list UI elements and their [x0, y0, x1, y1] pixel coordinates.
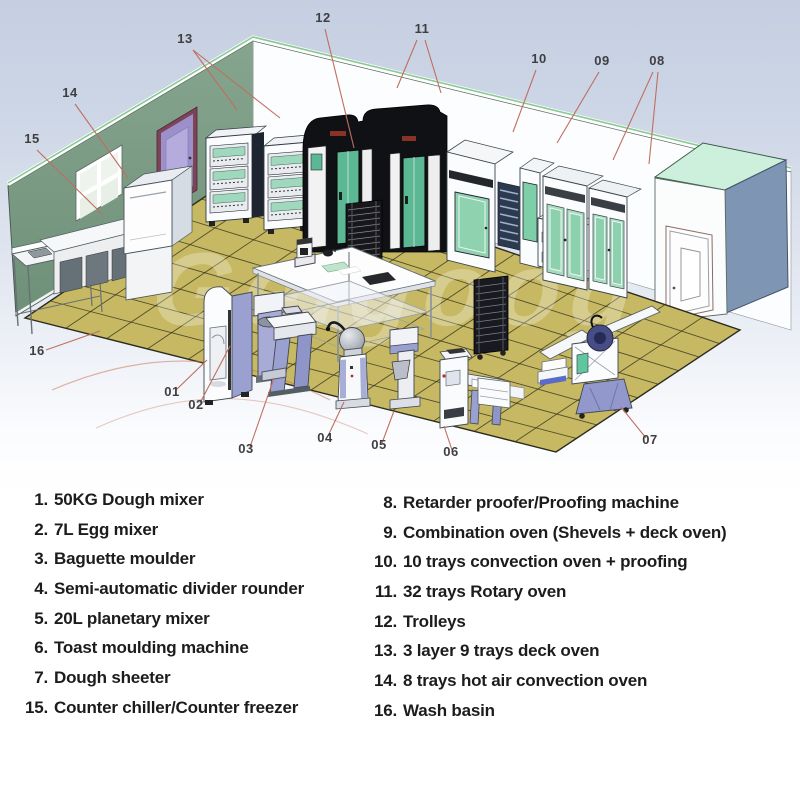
- legend-item-text: Semi-automatic divider rounder: [54, 574, 304, 604]
- walk-in-chamber: [655, 143, 788, 322]
- coffee-machine: [295, 238, 315, 267]
- legend-item: 3.Baguette moulder: [20, 544, 360, 574]
- watermark-swoosh: [96, 399, 368, 434]
- callout-label-14: 14: [62, 85, 78, 100]
- legend-column-right: 8.Retarder proofer/Proofing machine9.Com…: [370, 488, 790, 726]
- legend-item-number: 5.: [20, 604, 48, 634]
- legend-item-text: Trolleys: [403, 607, 466, 637]
- bakery-layout-screenshot: Gelgoog: [0, 0, 800, 800]
- leader-line: [176, 360, 207, 390]
- legend-item-number: 4.: [20, 574, 48, 604]
- callout-label-12: 12: [315, 10, 330, 25]
- callout-label-08: 08: [649, 53, 664, 68]
- callout-label-01: 01: [164, 384, 179, 399]
- legend-item-number: 6.: [20, 633, 48, 663]
- legend-item: 12.Trolleys: [370, 607, 790, 637]
- legend-column-left: 1.50KG Dough mixer2.7L Egg mixer3.Baguet…: [20, 485, 360, 723]
- legend-item-text: Retarder proofer/Proofing machine: [403, 488, 679, 518]
- legend-item-text: Toast moulding machine: [54, 633, 249, 663]
- deck-oven-module: [210, 143, 248, 213]
- legend-item-number: 8.: [370, 488, 397, 518]
- callout-label-10: 10: [531, 51, 546, 66]
- callout-label-06: 06: [443, 444, 458, 459]
- trolley: [474, 276, 508, 360]
- legend-item-number: 11.: [370, 577, 397, 607]
- legend-item: 4.Semi-automatic divider rounder: [20, 574, 360, 604]
- legend-item-text: 10 trays convection oven + proofing: [403, 547, 687, 577]
- legend-item: 14.8 trays hot air convection oven: [370, 666, 790, 696]
- legend-item-number: 16.: [370, 696, 397, 726]
- legend-item: 2.7L Egg mixer: [20, 515, 360, 545]
- legend-item-text: 3 layer 9 trays deck oven: [403, 636, 599, 666]
- legend-item: 8.Retarder proofer/Proofing machine: [370, 488, 790, 518]
- callout-label-04: 04: [317, 430, 333, 445]
- slat-rack: [498, 182, 520, 250]
- dough-mixer-01: [204, 287, 252, 405]
- legend-item: 1.50KG Dough mixer: [20, 485, 360, 515]
- utility-cart: [478, 378, 510, 408]
- legend-item: 7.Dough sheeter: [20, 663, 360, 693]
- callout-label-07: 07: [642, 432, 657, 447]
- legend-item-number: 3.: [20, 544, 48, 574]
- legend-item-text: Baguette moulder: [54, 544, 195, 574]
- leader-line: [46, 331, 100, 350]
- legend-item-number: 15.: [20, 693, 48, 723]
- callout-label-03: 03: [238, 441, 253, 456]
- legend-item-number: 2.: [20, 515, 48, 545]
- legend-item-text: Combination oven (Shevels + deck oven): [403, 518, 727, 548]
- callout-label-02: 02: [188, 397, 203, 412]
- legend-item-number: 13.: [370, 636, 397, 666]
- legend-item-number: 1.: [20, 485, 48, 515]
- legend-item-text: 32 trays Rotary oven: [403, 577, 566, 607]
- legend-item: 16.Wash basin: [370, 696, 790, 726]
- legend-item-number: 7.: [20, 663, 48, 693]
- legend-item-number: 9.: [370, 518, 397, 548]
- chamber-door: [666, 226, 713, 320]
- callout-label-05: 05: [371, 437, 386, 452]
- legend-item-number: 10.: [370, 547, 397, 577]
- legend-item-text: Dough sheeter: [54, 663, 170, 693]
- legend-item-number: 12.: [370, 607, 397, 637]
- legend-item: 11.32 trays Rotary oven: [370, 577, 790, 607]
- legend-item-text: 8 trays hot air convection oven: [403, 666, 647, 696]
- callout-label-13: 13: [177, 31, 192, 46]
- callout-label-16: 16: [29, 343, 44, 358]
- legend-item-text: 50KG Dough mixer: [54, 485, 204, 515]
- callout-label-09: 09: [594, 53, 609, 68]
- legend-item: 10.10 trays convection oven + proofing: [370, 547, 790, 577]
- legend-item-text: 7L Egg mixer: [54, 515, 158, 545]
- legend-item: 5.20L planetary mixer: [20, 604, 360, 634]
- bakery-layout-diagram: Gelgoog: [0, 0, 800, 478]
- legend-item-number: 14.: [370, 666, 397, 696]
- legend-item-text: Wash basin: [403, 696, 495, 726]
- legend-item: 6.Toast moulding machine: [20, 633, 360, 663]
- callout-label-11: 11: [415, 21, 430, 36]
- leader-line: [250, 378, 274, 447]
- legend-item-text: Counter chiller/Counter freezer: [54, 693, 298, 723]
- callout-label-15: 15: [24, 131, 39, 146]
- legend-item-text: 20L planetary mixer: [54, 604, 210, 634]
- legend-item: 15.Counter chiller/Counter freezer: [20, 693, 360, 723]
- deck-oven-module: [268, 151, 306, 221]
- legend-item: 13.3 layer 9 trays deck oven: [370, 636, 790, 666]
- legend-item: 9.Combination oven (Shevels + deck oven): [370, 518, 790, 548]
- step-stool: [538, 358, 568, 386]
